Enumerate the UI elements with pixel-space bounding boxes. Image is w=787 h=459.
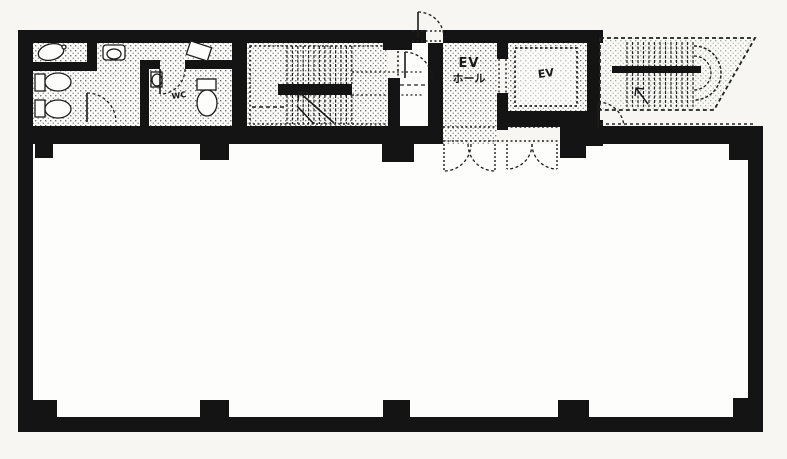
- column: [558, 400, 589, 417]
- column: [200, 400, 229, 417]
- toilet-tank: [197, 79, 216, 90]
- urinal-bowl: [107, 49, 121, 59]
- column: [383, 400, 410, 417]
- wall-stair-left: [232, 43, 247, 126]
- wall-left: [18, 30, 33, 432]
- floor-plan-drawing: [0, 0, 787, 459]
- column: [33, 400, 57, 417]
- stair-landing-divider: [612, 66, 701, 73]
- toilet-tank: [35, 100, 45, 117]
- shaft-wall: [497, 111, 600, 127]
- faucet: [62, 45, 66, 49]
- toilet-bowl: [197, 90, 217, 116]
- wall-top-outer: [18, 30, 426, 43]
- column: [35, 144, 53, 158]
- ev-hall-label: EV ホール: [438, 56, 500, 86]
- toilet-bowl: [45, 100, 71, 118]
- stair-landing-divider: [278, 84, 352, 95]
- wall-partition: [140, 60, 149, 126]
- column: [733, 398, 750, 417]
- floor-plan: EV ホール EV WC: [0, 0, 787, 459]
- main-room: [33, 144, 748, 417]
- wall-main-right-segment: [560, 126, 750, 144]
- column: [382, 144, 414, 162]
- wall-partition: [185, 60, 233, 69]
- wall-partition: [383, 30, 412, 50]
- wall-bottom: [18, 417, 763, 432]
- wall-partition: [388, 78, 400, 126]
- external-stair-floor: [600, 38, 755, 110]
- wall-top-ev: [443, 30, 603, 43]
- wall-partition: [140, 60, 160, 69]
- column: [200, 144, 229, 160]
- ev-hall-label-line2: ホール: [438, 72, 500, 86]
- wall-main-left-segment: [33, 126, 443, 144]
- ev-hall-label-line1: EV: [459, 56, 480, 71]
- wall-right: [748, 126, 763, 432]
- toilet-bowl: [45, 73, 71, 91]
- column: [560, 144, 586, 158]
- toilet-tank: [35, 74, 45, 91]
- wall-partition: [87, 43, 97, 71]
- column: [729, 144, 750, 160]
